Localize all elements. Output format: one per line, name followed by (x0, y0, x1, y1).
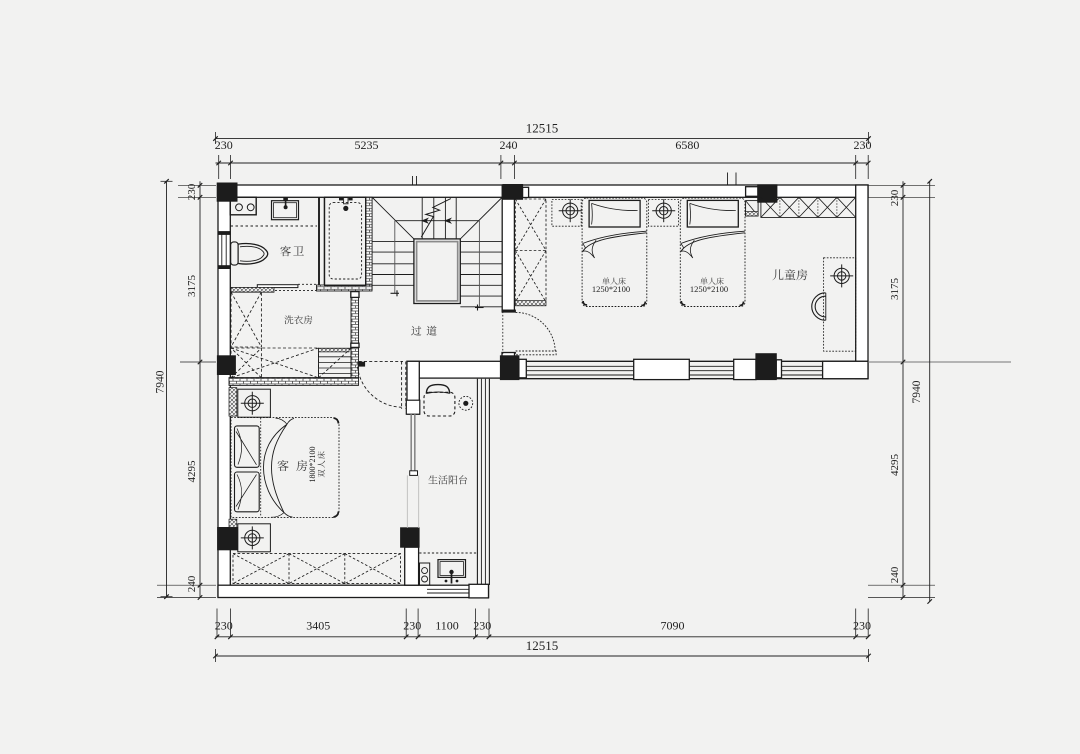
svg-text:230: 230 (215, 619, 233, 633)
svg-text:4295: 4295 (889, 454, 901, 477)
svg-text:230: 230 (854, 138, 872, 152)
svg-text:5235: 5235 (355, 138, 379, 152)
svg-text:230: 230 (853, 619, 871, 633)
svg-text:6580: 6580 (675, 138, 699, 152)
svg-text:230: 230 (215, 138, 233, 152)
svg-text:1800*2100: 1800*2100 (308, 447, 317, 483)
svg-text:12515: 12515 (526, 120, 559, 135)
svg-text:7940: 7940 (155, 370, 167, 393)
svg-text:1250*2100: 1250*2100 (592, 284, 630, 294)
svg-text:240: 240 (500, 138, 518, 152)
svg-text:230: 230 (889, 189, 901, 206)
svg-text:240: 240 (186, 575, 198, 592)
svg-text:4295: 4295 (186, 460, 198, 483)
svg-text:3175: 3175 (889, 278, 901, 301)
svg-text:7090: 7090 (661, 619, 685, 633)
svg-text:1250*2100: 1250*2100 (690, 284, 728, 294)
svg-text:230: 230 (186, 183, 198, 200)
svg-text:240: 240 (889, 566, 901, 583)
svg-text:3175: 3175 (186, 275, 198, 298)
svg-text:3405: 3405 (306, 619, 330, 633)
svg-text:230: 230 (473, 619, 491, 633)
svg-text:1100: 1100 (435, 619, 459, 633)
svg-text:230: 230 (403, 619, 421, 633)
svg-text:12515: 12515 (526, 638, 559, 653)
svg-text:7940: 7940 (911, 380, 923, 403)
